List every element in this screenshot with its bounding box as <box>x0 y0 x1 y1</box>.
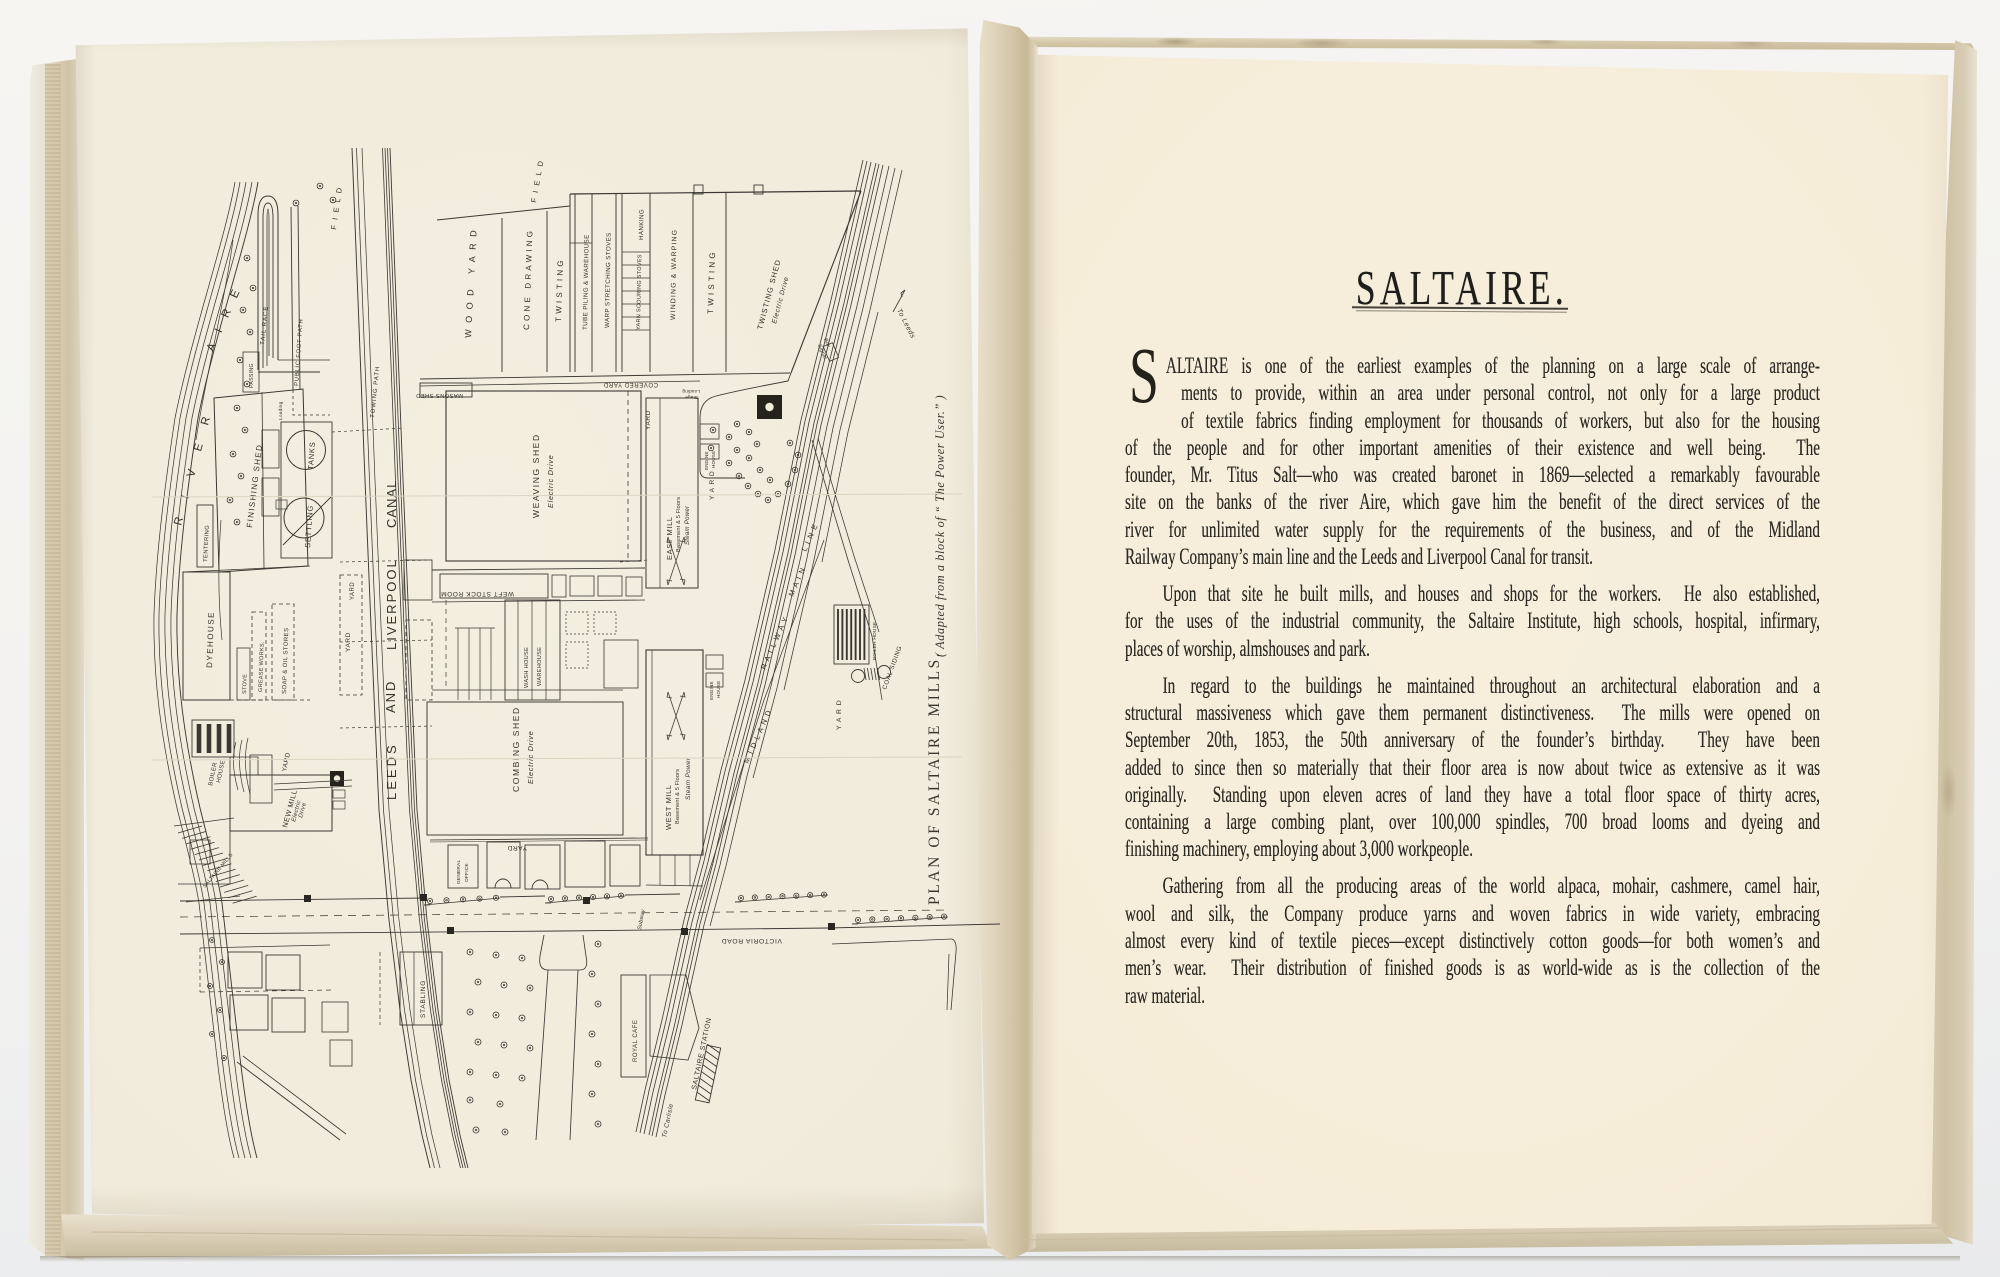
svg-text:Y A R D: Y A R D <box>709 470 716 500</box>
svg-text:TAIL RACE: TAIL RACE <box>260 305 270 345</box>
svg-text:SOAP & OIL STORES: SOAP & OIL STORES <box>282 628 290 695</box>
svg-text:LIVERPOOL: LIVERPOOL <box>384 558 399 650</box>
svg-text:YARD: YARD <box>345 632 352 652</box>
svg-text:ENGINE: ENGINE <box>709 681 714 700</box>
svg-text:VICTORIA ROAD: VICTORIA ROAD <box>721 937 782 944</box>
svg-text:WEAVING SHED: WEAVING SHED <box>531 433 541 518</box>
svg-text:GENERAL: GENERAL <box>456 860 462 884</box>
svg-text:COAL SIDING: COAL SIDING <box>881 645 903 691</box>
svg-text:BOILER HOUSE: BOILER HOUSE <box>872 622 878 660</box>
svg-text:Basement & 5 Floors: Basement & 5 Floors <box>675 769 681 824</box>
svg-text:To Leeds: To Leeds <box>895 308 916 340</box>
svg-text:PLAN OF SALTAIRE MILLS.: PLAN OF SALTAIRE MILLS. <box>926 651 943 905</box>
svg-text:GREASE WORKS.: GREASE WORKS. <box>258 641 266 692</box>
svg-text:M I D L A N D: M I D L A N D <box>742 708 774 765</box>
svg-text:FINISHING SHED: FINISHING SHED <box>245 443 264 528</box>
svg-text:EAST MILL: EAST MILL <box>665 516 674 560</box>
svg-text:L I N E: L I N E <box>800 522 820 553</box>
svg-text:TUBE PILING & WAREHOUSE: TUBE PILING & WAREHOUSE <box>582 234 591 330</box>
svg-text:Steam Power: Steam Power <box>685 757 692 800</box>
svg-text:TWISTING: TWISTING <box>706 249 717 314</box>
svg-text:Steam Power: Steam Power <box>685 505 691 545</box>
svg-text:STABLING: STABLING <box>420 980 427 1018</box>
svg-text:ENGINE: ENGINE <box>704 451 709 470</box>
svg-text:Subway: Subway <box>637 908 647 931</box>
svg-text:WAREHOUSE: WAREHOUSE <box>537 647 543 686</box>
svg-text:WASH HOUSE: WASH HOUSE <box>524 647 530 688</box>
svg-text:LEEDS: LEEDS <box>384 742 399 800</box>
svg-text:HOUSE: HOUSE <box>711 451 716 468</box>
svg-text:COMBING SHED: COMBING SHED <box>511 706 521 792</box>
svg-text:WEST MILL: WEST MILL <box>664 784 673 830</box>
svg-text:ROYAL CAFE: ROYAL CAFE <box>633 1020 639 1062</box>
svg-text:OFFICE: OFFICE <box>464 863 470 882</box>
svg-text:WEFT STOCK ROOM: WEFT STOCK ROOM <box>441 590 514 597</box>
svg-text:Loading: Loading <box>278 401 284 420</box>
svg-text:Electric Drive: Electric Drive <box>526 730 535 784</box>
svg-text:DYEHOUSE: DYEHOUSE <box>205 611 216 668</box>
svg-text:YARD: YARD <box>281 752 292 773</box>
svg-text:YARD: YARD <box>350 582 356 600</box>
svg-text:Electric Drive: Electric Drive <box>546 454 555 508</box>
svg-text:To Carlisle: To Carlisle <box>661 1103 675 1139</box>
svg-text:TWISTING: TWISTING <box>554 257 565 322</box>
svg-text:Loading: Loading <box>682 389 700 394</box>
svg-text:SETTLING: SETTLING <box>303 505 315 549</box>
svg-text:CONE DRAWING: CONE DRAWING <box>522 228 535 330</box>
svg-text:TOWING PATH: TOWING PATH <box>370 366 381 419</box>
svg-text:TENTERING: TENTERING <box>203 525 211 562</box>
svg-text:STOVE: STOVE <box>242 674 249 694</box>
svg-text:TANKS: TANKS <box>306 441 317 470</box>
svg-text:( Adapted from a block of: ( Adapted from a block of “ The Power Us… <box>933 395 947 657</box>
svg-text:WARP STRETCHING STOVES: WARP STRETCHING STOVES <box>604 232 613 328</box>
svg-text:AND: AND <box>383 680 398 713</box>
svg-text:CANAL: CANAL <box>384 480 399 528</box>
svg-text:WINDING & WARPING: WINDING & WARPING <box>670 229 679 320</box>
svg-text:WOOD YARD: WOOD YARD <box>463 224 479 339</box>
svg-text:YARN SCOURING STOVES: YARN SCOURING STOVES <box>636 254 643 330</box>
svg-text:Y A R D: Y A R D <box>836 699 843 730</box>
svg-text:F I E L D: F I E L D <box>329 186 344 231</box>
svg-text:COVERED YARD: COVERED YARD <box>603 381 658 387</box>
svg-text:MASONS SHED: MASONS SHED <box>416 392 463 398</box>
svg-text:F I E L D: F I E L D <box>529 159 545 204</box>
svg-text:HOUSE: HOUSE <box>716 681 721 698</box>
svg-text:HANKING: HANKING <box>638 209 646 240</box>
svg-text:Basement & 5 Floors: Basement & 5 Floors <box>676 497 682 552</box>
svg-text:YARD: YARD <box>507 844 527 851</box>
svg-text:PUBLIC FOOT PATH: PUBLIC FOOT PATH <box>294 318 305 386</box>
svg-text:PASSING: PASSING <box>249 363 255 388</box>
